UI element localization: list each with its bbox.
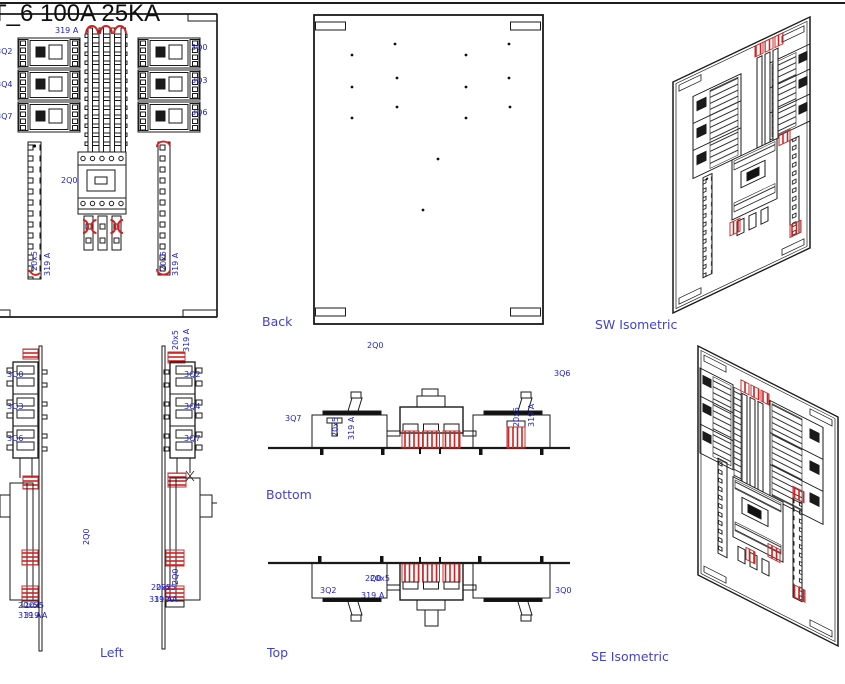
front-breaker-label-3q4: 3Q4 xyxy=(0,81,12,89)
bottom-right-bus-rating-label: 319 A xyxy=(528,404,536,427)
view-caption-top: Top xyxy=(267,647,288,660)
left-view-breaker-label-3q6: 3Q6 xyxy=(7,435,23,443)
front-breaker-label-3q2: 3Q2 xyxy=(0,48,12,56)
view-caption-left: Left xyxy=(100,647,124,660)
bottom-left-bus-rating-label: 319 A xyxy=(348,417,356,440)
bottom-right-bus-size-label: 20x5 xyxy=(513,407,521,427)
front-left-bus-rating-label: 319 A xyxy=(44,253,52,276)
left-view-bus-size-label-b: 20x5 xyxy=(24,602,44,610)
left-view-breaker-label-3q7: 3Q7 xyxy=(184,435,200,443)
front-breaker-label-3q3: 3Q3 xyxy=(191,77,207,85)
bottom-left-bus-size-label: 20x5 xyxy=(332,417,340,437)
top-view-drawing xyxy=(268,552,573,630)
left-view-breaker-label-3q3: 3Q3 xyxy=(7,403,23,411)
bottom-breaker-label-3q6: 3Q6 xyxy=(554,370,570,378)
left-view-breaker-label-3q4: 3Q4 xyxy=(184,403,200,411)
front-breaker-label-3q7: 3Q7 xyxy=(0,113,12,121)
back-view-drawing xyxy=(313,14,545,326)
top-breaker-label-3q2: 3Q2 xyxy=(320,587,336,595)
front-busbar-rating-label: 319 A xyxy=(55,27,78,35)
front-view-drawing xyxy=(0,10,232,340)
left-view-breaker-label-3q0: 3Q0 xyxy=(7,371,23,379)
left-view-breaker-label-3q2: 3Q2 xyxy=(184,371,200,379)
front-main-breaker-label: 2Q0 xyxy=(61,177,77,185)
left-view-main-breaker-label: 2Q0 xyxy=(83,529,91,545)
top-breaker-label-3q0: 3Q0 xyxy=(555,587,571,595)
se-isometric-drawing xyxy=(660,343,845,675)
view-caption-sw-isometric: SW Isometric xyxy=(595,319,677,332)
front-breaker-label-3q6: 3Q6 xyxy=(191,109,207,117)
front-breaker-label-3q0: 3Q0 xyxy=(191,44,207,52)
view-caption-bottom: Bottom xyxy=(266,489,312,502)
drawing-title: T_6 100A 25KA xyxy=(0,0,160,28)
left-view-top-bus-size-label: 20x5 xyxy=(172,330,180,350)
front-left-bus-size-label: 20x5 xyxy=(31,251,39,271)
left-view-bus-rating-label-b: 319 A xyxy=(24,612,47,620)
front-right-bus-size-label: 20x5 xyxy=(160,251,168,271)
left-view-right-bus-rating-label-b: 319 A xyxy=(154,596,177,604)
sw-isometric-drawing xyxy=(660,10,845,342)
left-view-right-bus-size-label-b: 20x5 xyxy=(156,584,176,592)
drawing-canvas[interactable]: T_6 100A 25KA Back Bottom Left Top SW Is… xyxy=(0,0,845,684)
view-caption-se-isometric: SE Isometric xyxy=(591,651,669,664)
top-bus-size-label: 20x5 xyxy=(370,575,390,583)
view-caption-back: Back xyxy=(262,316,292,329)
front-right-bus-rating-label: 319 A xyxy=(172,253,180,276)
bottom-breaker-label-3q7: 3Q7 xyxy=(285,415,301,423)
top-bus-rating-label: 319 A xyxy=(361,592,384,600)
left-view-top-bus-rating-label: 319 A xyxy=(183,329,191,352)
back-main-breaker-label: 2Q0 xyxy=(367,342,383,350)
